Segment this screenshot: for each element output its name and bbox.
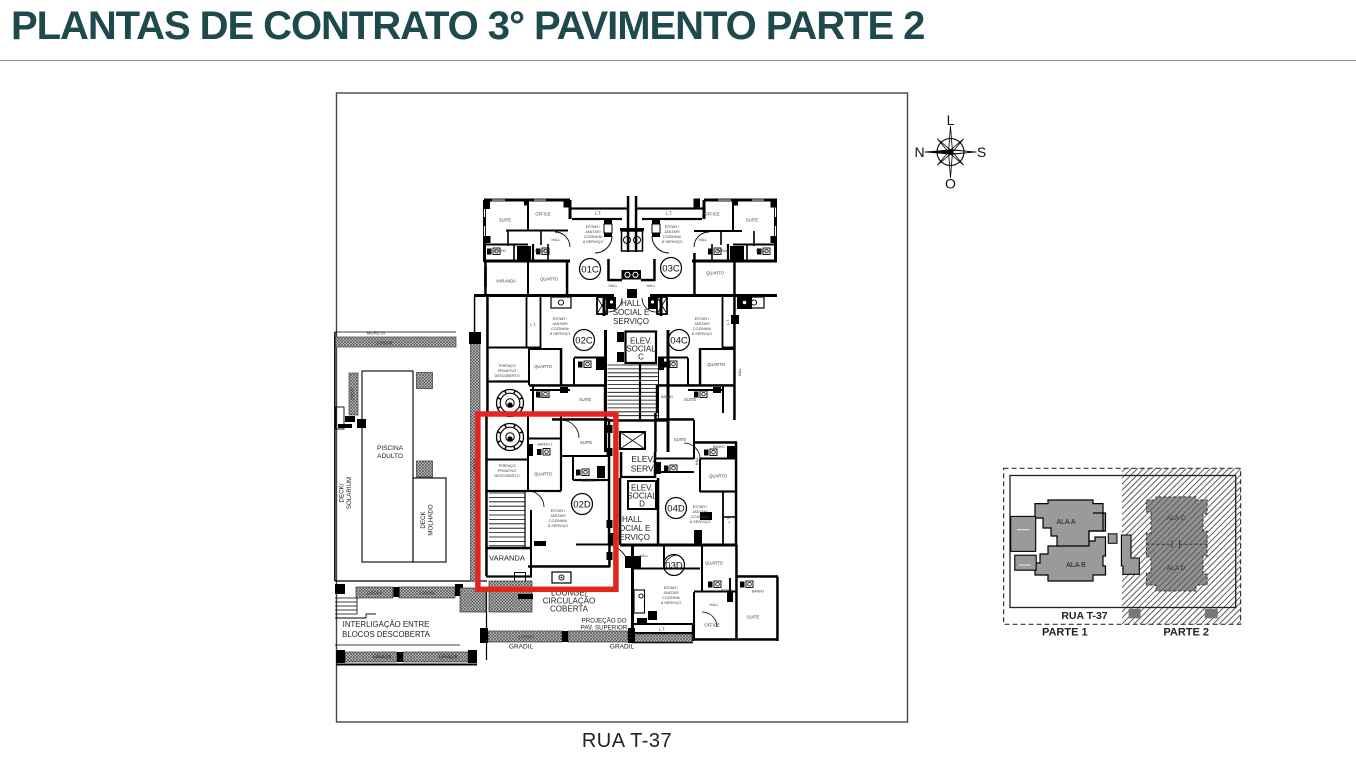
svg-text:PARTE 1: PARTE 1 [1042,627,1088,639]
svg-text:PISCINA: PISCINA [377,445,404,452]
svg-text:L.T.: L.T. [727,517,731,523]
svg-text:BANHO: BANHO [713,445,725,449]
svg-text:QUARTO: QUARTO [707,362,726,367]
svg-text:MOLHADO: MOLHADO [428,504,435,535]
svg-text:COBERTA: COBERTA [550,605,589,614]
svg-text:GRADIL: GRADIL [610,644,635,651]
svg-text:SOLARIUM: SOLARIUM [346,477,353,509]
svg-text:SERVIÇO: SERVIÇO [614,533,650,542]
svg-text:L.T.: L.T. [726,319,730,325]
svg-text:BANHO: BANHO [721,589,733,593]
svg-text:BANHO 2: BANHO 2 [582,479,597,483]
svg-text:VARANDA: VARANDA [496,279,516,284]
svg-text:OFFICE: OFFICE [704,623,720,628]
svg-text:QUARTO: QUARTO [706,271,725,276]
svg-text:BLOCOS DESCOBERTA: BLOCOS DESCOBERTA [342,630,430,639]
svg-text:D: D [639,500,645,509]
svg-text:L.T.: L.T. [530,323,536,327]
svg-text:BANHO: BANHO [535,249,547,253]
svg-text:GRADIL: GRADIL [509,644,534,651]
svg-text:JANTAR/: JANTAR/ [552,322,568,326]
svg-text:À SERVIÇO: À SERVIÇO [662,240,683,244]
svg-text:02C: 02C [575,335,593,346]
svg-text:HALL: HALL [699,238,708,242]
svg-text:SERV.: SERV. [631,464,656,474]
svg-text:QUARTO: QUARTO [540,277,559,282]
svg-text:S: S [977,144,986,160]
svg-text:ALA A: ALA A [1056,519,1075,526]
svg-text:À SERVIÇO: À SERVIÇO [550,332,571,336]
svg-text:04C: 04C [670,335,688,346]
svg-text:À SERVIÇO: À SERVIÇO [690,520,711,524]
svg-text:GRADIL: GRADIL [439,655,459,661]
svg-text:JANTAR/: JANTAR/ [585,230,601,234]
svg-text:ALA B: ALA B [1066,562,1086,569]
svg-text:SUITE: SUITE [499,218,512,223]
svg-text:COZINHA/: COZINHA/ [662,596,681,600]
svg-text:L: L [947,112,955,128]
svg-text:DECK/: DECK/ [339,483,346,502]
svg-text:ESTAR /: ESTAR / [665,225,680,229]
svg-text:O: O [945,176,956,192]
svg-text:ALA C: ALA C [1167,515,1186,522]
svg-text:GRADIL: GRADIL [373,655,393,661]
svg-text:BANHO: BANHO [752,590,764,594]
svg-text:OFFICE: OFFICE [704,212,720,217]
svg-text:PARTE 2: PARTE 2 [1163,627,1209,639]
svg-text:SOCIAL E: SOCIAL E [613,308,650,317]
svg-text:JANTAR/: JANTAR/ [664,230,680,234]
svg-text:ALA D: ALA D [1167,565,1186,572]
svg-text:COZINHA/: COZINHA/ [584,235,603,239]
svg-text:QUARTO: QUARTO [709,474,728,479]
svg-text:QUARTO: QUARTO [534,364,553,369]
svg-text:VARANDA: VARANDA [489,554,525,563]
svg-text:N: N [914,144,924,160]
svg-text:JARDIM: JARDIM [351,388,355,401]
svg-text:JARDIM: JARDIM [366,591,382,596]
svg-text:COZINHA/: COZINHA/ [691,515,710,519]
svg-text:JANTAR/: JANTAR/ [663,591,679,595]
svg-text:TERRAÇO: TERRAÇO [498,364,516,368]
svg-text:ESTAR /: ESTAR / [551,509,566,513]
svg-text:RUA T-37: RUA T-37 [1061,610,1107,622]
svg-text:RUA T-37: RUA T-37 [582,730,672,752]
svg-text:SERVIÇO: SERVIÇO [613,317,649,326]
svg-text:COZINHA/: COZINHA/ [693,327,712,331]
svg-text:HALL: HALL [621,299,642,308]
svg-text:L.T.: L.T. [595,211,602,216]
svg-text:À SERVIÇO: À SERVIÇO [583,240,604,244]
svg-text:PROJEÇÃO DO: PROJEÇÃO DO [581,618,626,625]
svg-text:JANTAR/: JANTAR/ [550,514,566,518]
svg-text:HALL: HALL [738,368,742,377]
svg-text:JANTAR/: JANTAR/ [692,510,708,514]
svg-text:COZINHA/: COZINHA/ [663,235,682,239]
svg-text:COZINHA/: COZINHA/ [549,519,568,523]
svg-text:02D: 02D [573,499,591,510]
svg-text:MURETA: MURETA [367,331,386,336]
svg-text:BANHO: BANHO [661,395,673,399]
svg-text:BANHO: BANHO [717,249,729,253]
svg-text:ESTAR /: ESTAR / [553,317,568,321]
svg-text:04D: 04D [667,503,685,514]
svg-text:03C: 03C [662,263,680,274]
svg-text:HALL: HALL [640,554,649,558]
svg-text:QUARTO: QUARTO [705,561,724,566]
svg-text:03D: 03D [665,560,683,571]
svg-text:JANTAR/: JANTAR/ [694,322,710,326]
svg-text:BANHO: BANHO [538,395,550,399]
svg-text:À SERVIÇO: À SERVIÇO [692,332,713,336]
svg-text:HALL: HALL [609,284,618,288]
svg-text:QUARTO: QUARTO [534,472,553,477]
svg-text:À SERVIÇO: À SERVIÇO [548,524,569,528]
svg-text:ESTAR /: ESTAR / [664,586,679,590]
svg-text:SUITE: SUITE [746,218,759,223]
svg-text:À SERVIÇO: À SERVIÇO [661,601,682,605]
svg-text:JARDIM: JARDIM [518,635,534,640]
svg-text:DESCOBERTO: DESCOBERTO [494,474,519,478]
svg-text:HALL: HALL [695,457,699,466]
svg-text:SUITE: SUITE [674,437,687,442]
svg-text:ADULTO: ADULTO [377,453,403,460]
svg-text:ESTAR /: ESTAR / [586,225,601,229]
svg-text:SOCIAL E: SOCIAL E [614,524,651,533]
svg-text:C: C [638,353,644,362]
svg-text:INTERLIGAÇÃO ENTRE: INTERLIGAÇÃO ENTRE [343,620,430,629]
svg-text:JARDIM: JARDIM [376,341,393,346]
svg-text:HALL: HALL [710,603,719,607]
svg-text:L.T.: L.T. [659,627,666,632]
svg-text:OFFICE: OFFICE [535,212,551,217]
svg-text:BANHO: BANHO [756,249,768,253]
svg-text:PRIVATIVO: PRIVATIVO [498,469,517,473]
svg-text:L.T.: L.T. [666,211,673,216]
svg-text:DECK: DECK [420,511,427,529]
svg-text:HALL: HALL [622,515,643,524]
svg-text:ELEV.: ELEV. [631,454,654,464]
svg-text:COZINHA/: COZINHA/ [551,327,570,331]
svg-text:SUITE: SUITE [747,615,760,620]
svg-text:BANHO 1: BANHO 1 [538,443,553,447]
svg-text:JARDIM: JARDIM [419,591,435,596]
svg-text:ESTAR /: ESTAR / [693,505,708,509]
svg-text:SUITE: SUITE [580,440,593,445]
svg-text:BANHO: BANHO [494,249,506,253]
svg-text:SUITE: SUITE [579,397,592,402]
svg-text:DESCOBERTO: DESCOBERTO [494,374,519,378]
svg-text:HALL: HALL [647,284,656,288]
svg-text:TERRAÇO: TERRAÇO [498,464,516,468]
svg-text:HALL: HALL [552,238,561,242]
svg-text:01C: 01C [581,264,599,275]
svg-text:ESTAR /: ESTAR / [695,317,710,321]
svg-text:SUITE: SUITE [684,397,697,402]
svg-text:PAV. SUPERIOR: PAV. SUPERIOR [581,625,628,632]
svg-text:PRIVATIVO: PRIVATIVO [498,369,517,373]
